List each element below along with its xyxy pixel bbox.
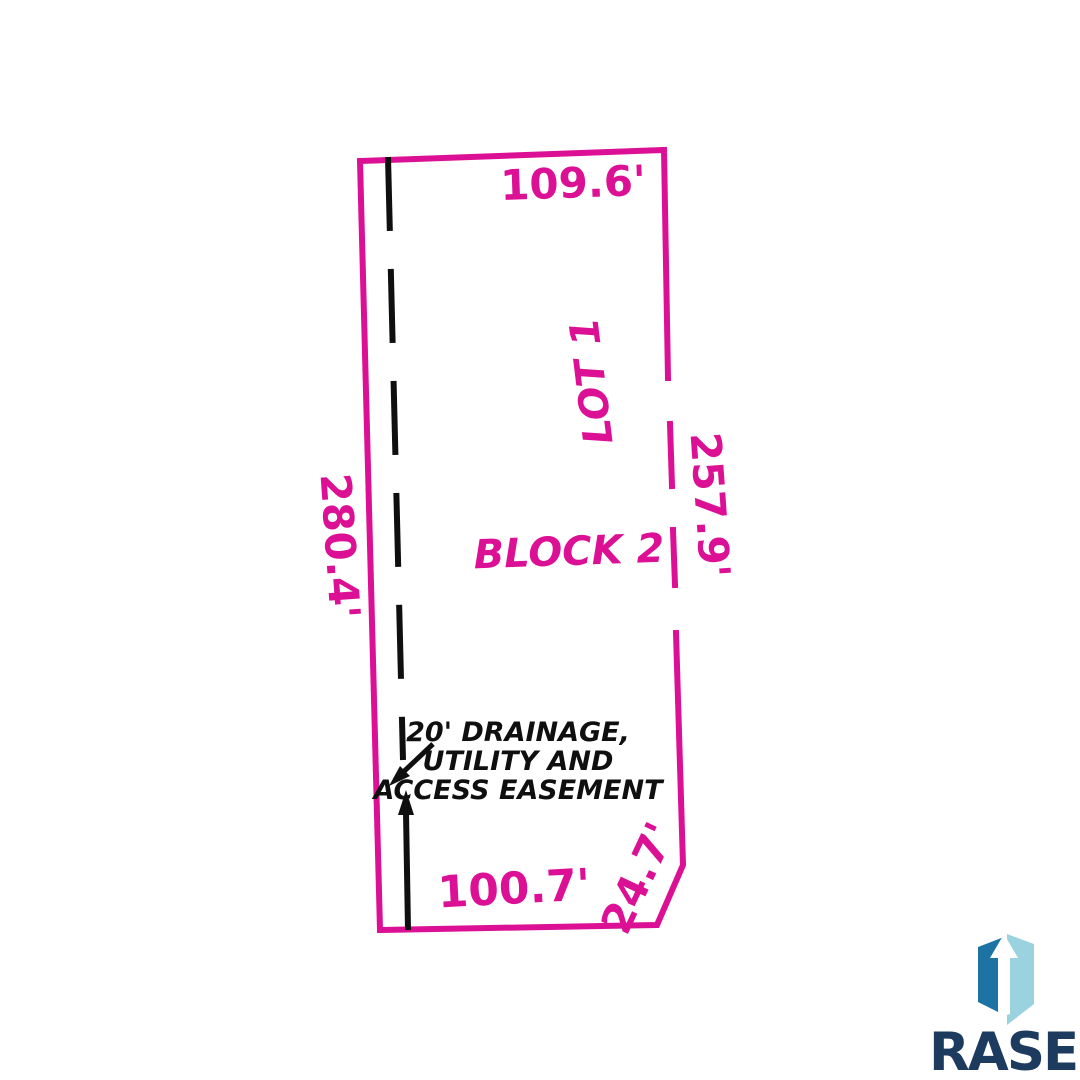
easement-note-line-2: UTILITY AND	[373, 747, 662, 776]
plat-map-canvas: 109.6' 280.4' 257.9' 100.7' 24.7' LOT 1 …	[0, 0, 1080, 1080]
easement-note-line-1: 20' DRAINAGE,	[373, 718, 662, 747]
building-arrow-icon	[966, 930, 1034, 1025]
easement-arrow-stem	[406, 812, 408, 930]
rase-logo: RASE	[929, 930, 1075, 1075]
dimension-right: 257.9'	[680, 431, 739, 580]
block-label: BLOCK 2	[473, 526, 665, 579]
easement-dashed-line	[388, 157, 403, 760]
rase-logo-text: RASE	[929, 1022, 1077, 1080]
dimension-left: 280.4'	[310, 472, 369, 621]
easement-note-line-3: ACCESS EASEMENT	[373, 776, 662, 805]
dimension-top: 109.6'	[499, 156, 646, 210]
easement-note: 20' DRAINAGE, UTILITY AND ACCESS EASEMEN…	[373, 718, 662, 805]
dimension-bottom: 100.7'	[436, 860, 591, 919]
